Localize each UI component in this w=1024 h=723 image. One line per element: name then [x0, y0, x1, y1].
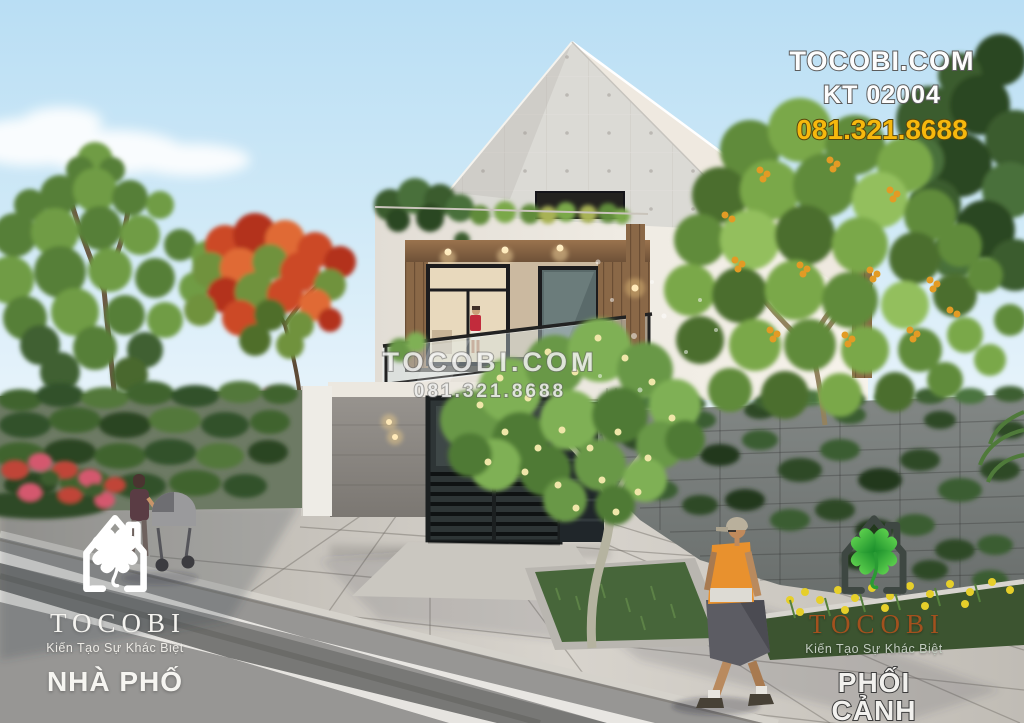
tocobi-logo-right: TOCOBI Kiến Tạo Sự Khác Biệt PHỐI CẢNH — [796, 501, 952, 723]
watermark-center-site: TOCOBI.COM — [368, 349, 612, 376]
house-clover-icon — [64, 500, 166, 604]
architectural-render: TOCOBI.COM KT 02004 081.321.8688 TOCOBI.… — [0, 0, 1024, 723]
brand-tagline: Kiến Tạo Sự Khác Biệt — [36, 642, 194, 655]
brand-name: TOCOBI — [796, 611, 952, 638]
brand-name: TOCOBI — [36, 610, 194, 637]
watermark-code: KT 02004 — [770, 83, 994, 108]
house-clover-icon — [819, 501, 929, 605]
watermark-site: TOCOBI.COM — [770, 48, 994, 75]
watermark-center: TOCOBI.COM 081.321.8688 — [368, 349, 612, 401]
tocobi-logo-left: TOCOBI Kiến Tạo Sự Khác Biệt NHÀ PHỐ — [36, 500, 194, 696]
watermark-phone: 081.321.8688 — [770, 116, 994, 144]
brand-tagline: Kiến Tạo Sự Khác Biệt — [796, 643, 952, 656]
wall-sconce — [625, 278, 645, 298]
clover-icon — [848, 526, 900, 588]
watermark-top-right: TOCOBI.COM KT 02004 081.321.8688 — [770, 48, 994, 144]
drawing-label: PHỐI CẢNH — [796, 669, 952, 723]
gate-pillar — [302, 386, 332, 516]
garage-wall — [330, 397, 428, 517]
clover-icon — [90, 525, 141, 586]
watermark-center-phone: 081.321.8688 — [368, 382, 612, 401]
front-lawn — [525, 558, 730, 650]
drawing-label: NHÀ PHỐ — [36, 668, 194, 696]
